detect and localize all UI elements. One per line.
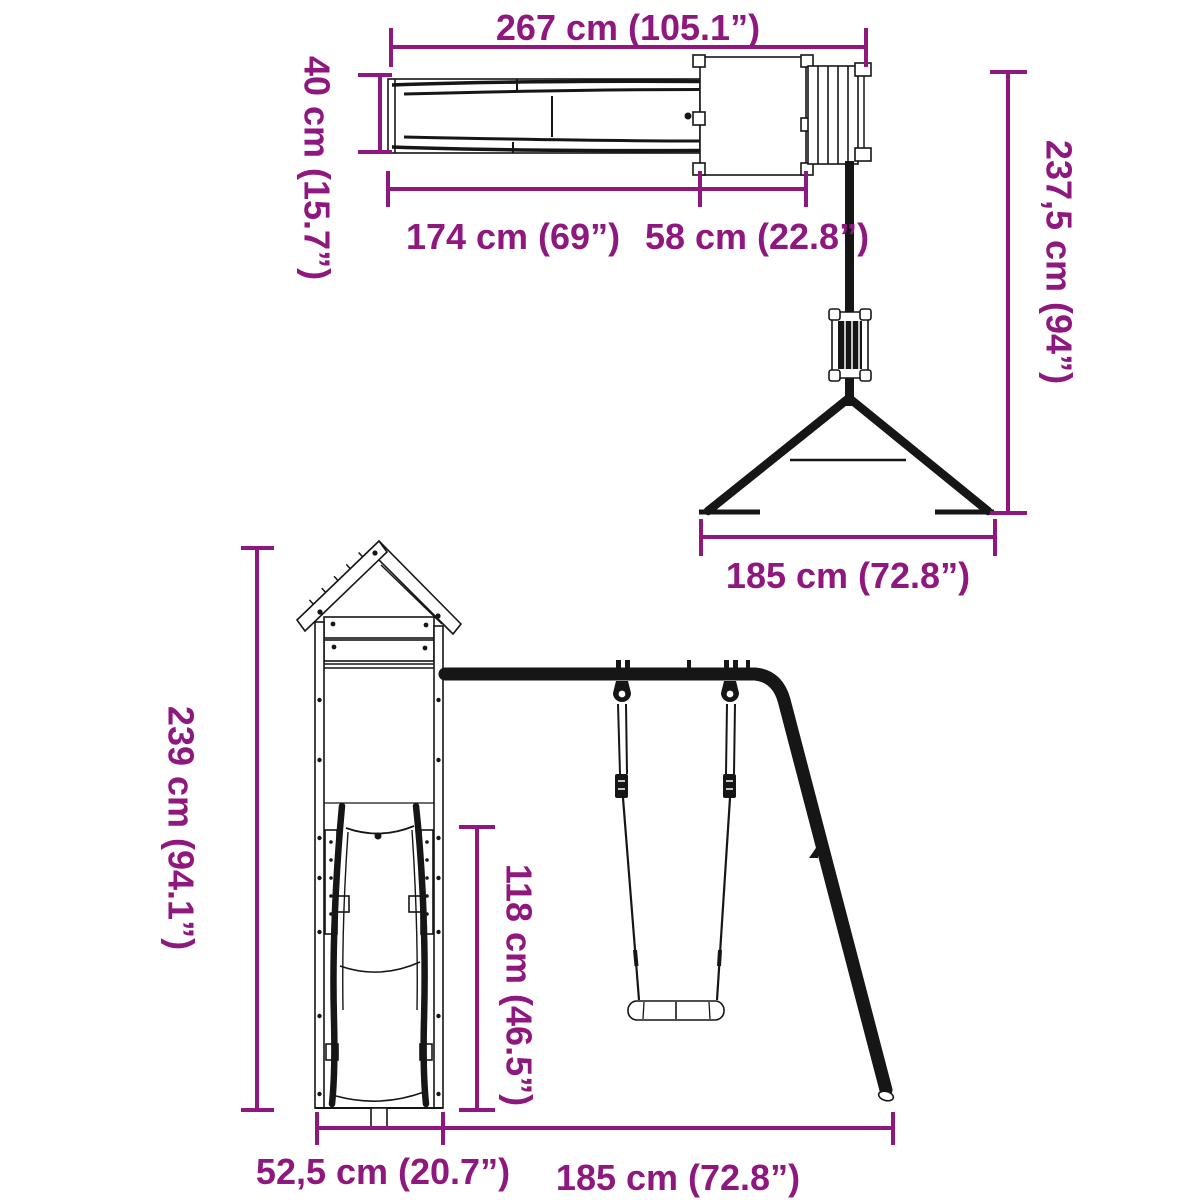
post-tab (801, 55, 813, 67)
seat-corner-lug (829, 370, 840, 381)
dim-label-total-height: 239 cm (94.1”) (160, 706, 201, 950)
ladder-top-view (808, 63, 871, 164)
screw-dot (372, 550, 377, 555)
dim-label-platform-depth: 58 cm (22.8”) (645, 216, 869, 257)
post-tab (693, 112, 705, 125)
roof-shingle-tick (346, 564, 350, 568)
platform-top-view (693, 55, 813, 175)
diagram-svg: 267 cm (105.1”) 40 cm (15.7”) 174 cm (69… (0, 0, 1200, 1200)
header-board (324, 617, 434, 638)
beam-hook-nub (687, 660, 691, 668)
screw-dot (435, 613, 440, 618)
tower-foot-tab (371, 1108, 387, 1128)
dim-slide-width: 40 cm (15.7”) (296, 56, 392, 280)
swing-strap (618, 704, 620, 774)
slide-chute-side (412, 830, 417, 1010)
tower-post-left (315, 622, 324, 1108)
dim-label-platform-height: 118 cm (46.5”) (498, 864, 539, 1106)
screw-dot (375, 833, 382, 840)
screw-dot (423, 646, 428, 651)
screw-dot (317, 609, 322, 614)
hanger-hole (727, 691, 734, 698)
swing-seat-top-view (829, 309, 871, 381)
roof-shingle-tick (309, 600, 313, 604)
header-board (324, 640, 434, 661)
screw-dot (685, 113, 692, 120)
seat-corner-lug (860, 309, 871, 320)
aframe-leg (708, 398, 849, 511)
slide-chute-side (343, 832, 348, 1010)
beam-hook-nub (746, 660, 750, 668)
dim-total-height: 239 cm (94.1”) (160, 548, 274, 1110)
rope-knot (635, 950, 637, 966)
beam-hook-nub (625, 660, 630, 668)
front-view: 239 cm (94.1”) 118 cm (46.5”) 52,5 cm (2… (160, 541, 894, 1198)
swing-rope (717, 798, 730, 1000)
rung-tab (337, 896, 349, 912)
swing-seat-front-view (628, 1001, 724, 1020)
dim-label-swing-section-width: 185 cm (72.8”) (556, 1157, 800, 1198)
top-view: 267 cm (105.1”) 40 cm (15.7”) 174 cm (69… (296, 7, 1079, 596)
swing-rope-left (613, 681, 639, 1000)
ladder-outline (808, 66, 858, 164)
slide-top-view (388, 79, 700, 153)
dim-frame-depth: 237,5 cm (94”) (990, 72, 1079, 513)
swing-rope-right (717, 681, 739, 1000)
dim-label-frame-depth: 237,5 cm (94”) (1038, 140, 1079, 384)
dim-swing-section-width: 185 cm (72.8”) (443, 1112, 893, 1198)
dim-label-slide-length: 174 cm (69”) (406, 216, 620, 257)
dim-platform-height: 118 cm (46.5”) (459, 827, 539, 1110)
tower-front-view (297, 541, 461, 1128)
leg-bracket-nub (809, 845, 818, 858)
screw-dot (424, 623, 429, 628)
swing-frame-top-view (699, 161, 994, 512)
seat-corner-lug (860, 370, 871, 381)
roof-shingle-tick (359, 553, 363, 557)
dim-slide-length-and-platform: 174 cm (69”) 58 cm (22.8”) (388, 171, 869, 257)
ladder-hook (855, 148, 871, 161)
screw-dot (332, 645, 337, 650)
seat-corner-lug (829, 309, 840, 320)
dim-label-total-length: 267 cm (105.1”) (496, 7, 760, 48)
slide-front-view (332, 806, 426, 1104)
platform-outline (700, 57, 806, 175)
front-view-dimensions: 239 cm (94.1”) 118 cm (46.5”) 52,5 cm (2… (160, 548, 893, 1198)
post-tab (693, 55, 705, 67)
dim-label-slide-width: 40 cm (15.7”) (296, 56, 337, 280)
beam-hook-nub (733, 660, 738, 668)
swing-strap (734, 704, 735, 774)
ladder-hook (855, 63, 871, 76)
dimension-diagram: 267 cm (105.1”) 40 cm (15.7”) 174 cm (69… (0, 0, 1200, 1200)
screw-dot (331, 622, 336, 627)
beam-hook-nub (616, 660, 621, 668)
slide-chute-top-edge (346, 826, 414, 834)
beam-hook-nub (724, 660, 729, 668)
strap-buckle (615, 774, 628, 798)
swing-strap (626, 704, 627, 774)
swing-rope (623, 798, 639, 1000)
slide-chute-bottom-edge (336, 1092, 424, 1101)
roof-shingle-tick (334, 576, 338, 580)
rope-knot (719, 950, 720, 966)
dim-label-tower-width: 52,5 cm (20.7”) (256, 1151, 510, 1192)
dim-label-frame-base-width: 185 cm (72.8”) (726, 555, 970, 596)
aframe-leg (849, 398, 988, 511)
strap-buckle (723, 774, 736, 798)
slide-chute-mid-edge (340, 962, 420, 972)
swing-strap (726, 704, 727, 774)
dim-frame-base-width: 185 cm (72.8”) (701, 519, 995, 596)
hanger-hole (619, 691, 626, 698)
roof-shingle-tick (322, 588, 326, 592)
